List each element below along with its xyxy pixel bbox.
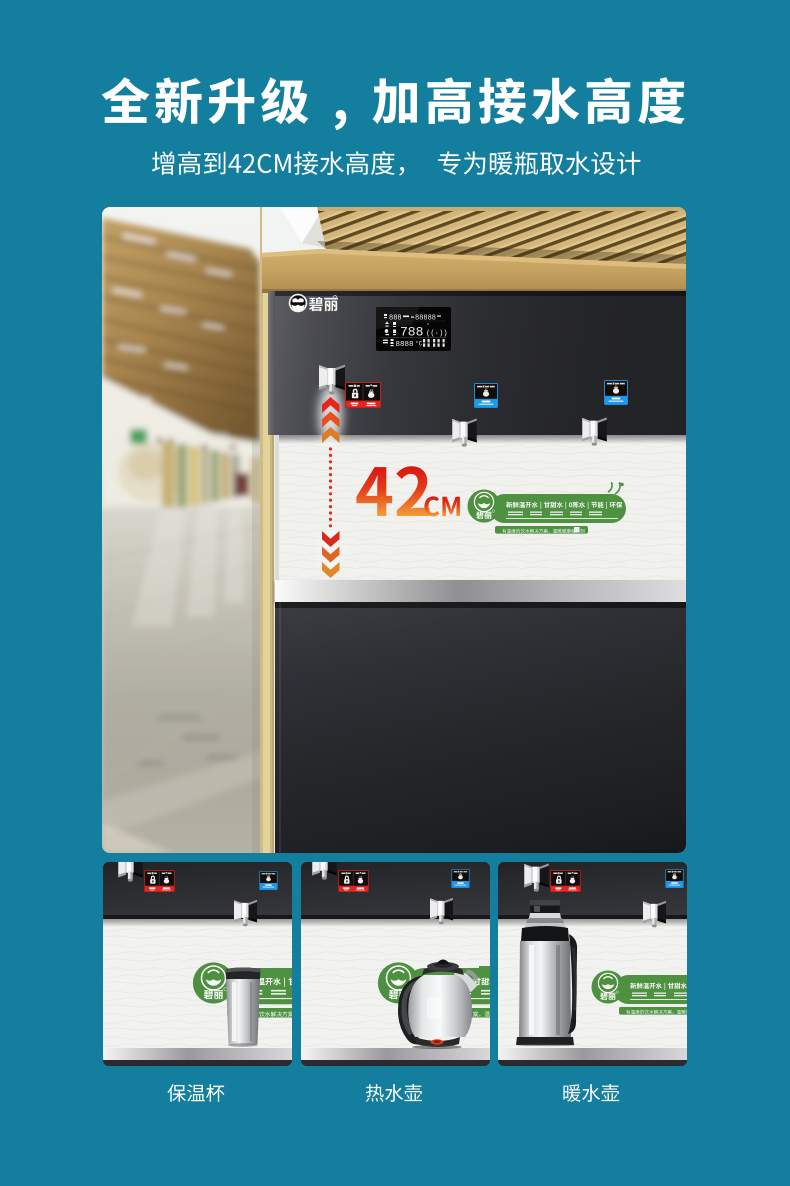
svg-text:°: ° (427, 323, 430, 329)
svg-text:°C: °C (415, 341, 423, 348)
svg-text:8888: 8888 (396, 341, 414, 349)
svg-text:((·)): ((·)) (426, 330, 448, 338)
